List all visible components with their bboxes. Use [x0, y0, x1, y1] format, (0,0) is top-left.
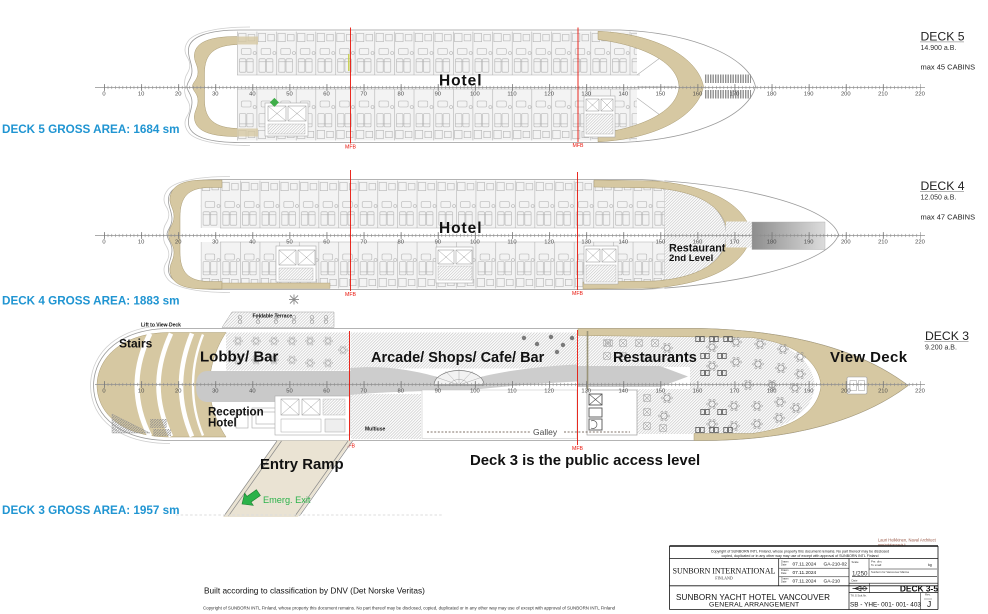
- svg-text:170: 170: [730, 240, 740, 246]
- svg-text:Arcade/ Shops/ Cafe/ Bar: Arcade/ Shops/ Cafe/ Bar: [371, 350, 545, 366]
- svg-text:220: 220: [915, 240, 925, 246]
- svg-text:200: 200: [841, 389, 851, 395]
- svg-text:max 47 CABINS: max 47 CABINS: [921, 212, 976, 221]
- svg-text:MFB: MFB: [345, 292, 356, 298]
- svg-text:Date: Date: [781, 563, 787, 567]
- svg-text:12.050 a.B.: 12.050 a.B.: [921, 195, 957, 202]
- svg-text:170: 170: [730, 389, 740, 395]
- svg-text:FINLAND: FINLAND: [715, 576, 733, 581]
- svg-text:Restaurants: Restaurants: [613, 350, 697, 366]
- svg-text:10: 10: [138, 389, 144, 395]
- svg-text:9.200 a.B.: 9.200 a.B.: [925, 345, 957, 352]
- svg-text:MFB: MFB: [573, 143, 584, 149]
- svg-text:Date: Date: [781, 580, 787, 584]
- svg-text:80: 80: [397, 389, 403, 395]
- svg-text:70: 70: [360, 389, 366, 395]
- svg-text:DECK 3-5: DECK 3-5: [900, 584, 939, 594]
- svg-text:30: 30: [212, 240, 218, 246]
- svg-text:Hotel: Hotel: [439, 220, 483, 237]
- svg-text:View Deck: View Deck: [830, 349, 908, 366]
- svg-text:200: 200: [841, 92, 851, 98]
- svg-text:MFB: MFB: [345, 145, 356, 151]
- svg-text:Stairs: Stairs: [119, 337, 153, 351]
- svg-text:copied, duplicated or in any o: copied, duplicated or in any other way m…: [721, 554, 878, 558]
- svg-text:Entry Ramp: Entry Ramp: [260, 457, 344, 473]
- svg-text:210: 210: [878, 389, 888, 395]
- svg-text:Lift to View Deck: Lift to View Deck: [141, 323, 181, 329]
- svg-text:190: 190: [804, 92, 814, 98]
- svg-text:2nd Level: 2nd Level: [669, 253, 713, 264]
- svg-text:190: 190: [804, 389, 814, 395]
- svg-text:160: 160: [693, 389, 703, 395]
- svg-text:150: 150: [656, 92, 666, 98]
- svg-text:Copyright of SUNBORN INTL Finl: Copyright of SUNBORN INTL Finland, whose…: [711, 550, 889, 554]
- svg-text:30: 30: [212, 389, 218, 395]
- svg-text:30: 30: [212, 92, 218, 98]
- svg-text:DECK 5 GROSS AREA: 1684 sm: DECK 5 GROSS AREA: 1684 sm: [2, 123, 180, 136]
- svg-text:210: 210: [878, 92, 888, 98]
- svg-text:100: 100: [470, 240, 480, 246]
- svg-text:190: 190: [804, 240, 814, 246]
- svg-text:50: 50: [286, 389, 292, 395]
- svg-text:60: 60: [323, 240, 329, 246]
- svg-text:DECK 3 GROSS AREA: 1957 sm: DECK 3 GROSS AREA: 1957 sm: [2, 504, 180, 517]
- svg-text:100: 100: [470, 92, 480, 98]
- svg-text:14.900 a.B.: 14.900 a.B.: [921, 45, 957, 52]
- svg-text:100: 100: [470, 389, 480, 395]
- svg-text:J: J: [927, 599, 931, 609]
- svg-text:20: 20: [175, 92, 181, 98]
- svg-text:140: 140: [618, 92, 628, 98]
- svg-text:max 45 CABINS: max 45 CABINS: [921, 63, 976, 72]
- svg-text:GA-210: GA-210: [824, 579, 841, 585]
- svg-text:SB - YHE- 001- 001- 403: SB - YHE- 001- 001- 403: [850, 602, 921, 609]
- svg-text:Scale: Scale: [852, 560, 859, 564]
- svg-text:120: 120: [544, 92, 554, 98]
- svg-text:130: 130: [581, 389, 591, 395]
- svg-text:MFB: MFB: [572, 291, 583, 297]
- svg-text:Copyright of SUNBORN INTL Finl: Copyright of SUNBORN INTL Finland, whose…: [203, 606, 616, 611]
- svg-text:Rev.: Rev.: [925, 593, 931, 597]
- svg-text:SUNBORN INTERNATIONAL: SUNBORN INTERNATIONAL: [673, 567, 776, 576]
- svg-text:DECK 5: DECK 5: [921, 29, 965, 43]
- svg-text:180: 180: [767, 92, 777, 98]
- svg-text:70: 70: [360, 92, 366, 98]
- svg-text:Hotel: Hotel: [208, 418, 237, 430]
- svg-text:140: 140: [618, 389, 628, 395]
- svg-text:210: 210: [878, 240, 888, 246]
- svg-text:kg: kg: [928, 563, 932, 567]
- svg-text:0: 0: [102, 389, 105, 395]
- svg-text:120: 120: [544, 240, 554, 246]
- svg-text:80: 80: [397, 240, 403, 246]
- svg-text:70: 70: [360, 240, 366, 246]
- svg-text:Built according to classificat: Built according to classification by DNV…: [204, 586, 425, 596]
- svg-text:07.11.2024: 07.11.2024: [793, 579, 817, 585]
- svg-text:170: 170: [730, 92, 740, 98]
- svg-text:DECK 4 GROSS AREA: 1883 sm: DECK 4 GROSS AREA: 1883 sm: [2, 295, 180, 308]
- svg-text:Deck 3 is the public access le: Deck 3 is the public access level: [470, 453, 700, 469]
- svg-text:90: 90: [435, 92, 441, 98]
- svg-text:DECK 3: DECK 3: [925, 329, 969, 343]
- svg-text:180: 180: [767, 389, 777, 395]
- svg-text:130: 130: [581, 92, 591, 98]
- svg-text:Date: Date: [781, 571, 787, 575]
- svg-text:10: 10: [138, 92, 144, 98]
- svg-text:GA-210-02: GA-210-02: [824, 562, 848, 568]
- svg-text:DECK 4: DECK 4: [921, 179, 965, 193]
- svg-text:80: 80: [397, 92, 403, 98]
- svg-text:90: 90: [435, 389, 441, 395]
- svg-text:0: 0: [102, 240, 105, 246]
- svg-text:200: 200: [841, 240, 851, 246]
- svg-text:Hotel: Hotel: [439, 73, 483, 90]
- svg-text:40: 40: [249, 389, 255, 395]
- svg-text:20: 20: [175, 240, 181, 246]
- svg-text:110: 110: [507, 389, 516, 395]
- svg-text:07.11.2024: 07.11.2024: [793, 562, 817, 568]
- svg-text:Foldable Terrace: Foldable Terrace: [253, 314, 293, 320]
- svg-text:150: 150: [656, 389, 666, 395]
- svg-text:60: 60: [323, 389, 329, 395]
- svg-text:40: 40: [249, 240, 255, 246]
- svg-text:50: 50: [286, 240, 292, 246]
- svg-text:90: 90: [435, 240, 441, 246]
- svg-text:Sunborn for Vancouver Marina: Sunborn for Vancouver Marina: [871, 570, 909, 574]
- svg-text:60: 60: [323, 92, 329, 98]
- svg-text:40: 40: [249, 92, 255, 98]
- svg-text:MFB: MFB: [572, 446, 583, 452]
- svg-text:0: 0: [102, 92, 105, 98]
- svg-text:220: 220: [915, 389, 925, 395]
- svg-text:220: 220: [915, 92, 925, 98]
- svg-text:1/250: 1/250: [852, 571, 868, 578]
- svg-text:50: 50: [286, 92, 292, 98]
- svg-text:180: 180: [767, 240, 777, 246]
- svg-text:130: 130: [581, 240, 591, 246]
- svg-text:Emerg. Exit: Emerg. Exit: [263, 495, 311, 505]
- svg-text:Multiuse: Multiuse: [365, 427, 385, 433]
- svg-text:TK.S Suk.Nr.: TK.S Suk.Nr.: [851, 594, 867, 598]
- svg-text:160: 160: [693, 92, 703, 98]
- svg-text:110: 110: [507, 240, 516, 246]
- svg-text:Lobby/ Bar: Lobby/ Bar: [200, 349, 279, 366]
- svg-text:GENERAL ARRANGEMENT: GENERAL ARRANGEMENT: [709, 602, 799, 609]
- svg-text:140: 140: [618, 240, 628, 246]
- svg-text:Date: Date: [852, 579, 858, 583]
- svg-text:To small: To small: [871, 563, 882, 567]
- svg-text:150: 150: [656, 240, 666, 246]
- svg-text:110: 110: [507, 92, 516, 98]
- svg-text:10: 10: [138, 240, 144, 246]
- svg-text:07.11.2024: 07.11.2024: [793, 570, 817, 576]
- svg-text:20: 20: [175, 389, 181, 395]
- svg-text:120: 120: [544, 389, 554, 395]
- svg-text:Galley: Galley: [533, 427, 558, 437]
